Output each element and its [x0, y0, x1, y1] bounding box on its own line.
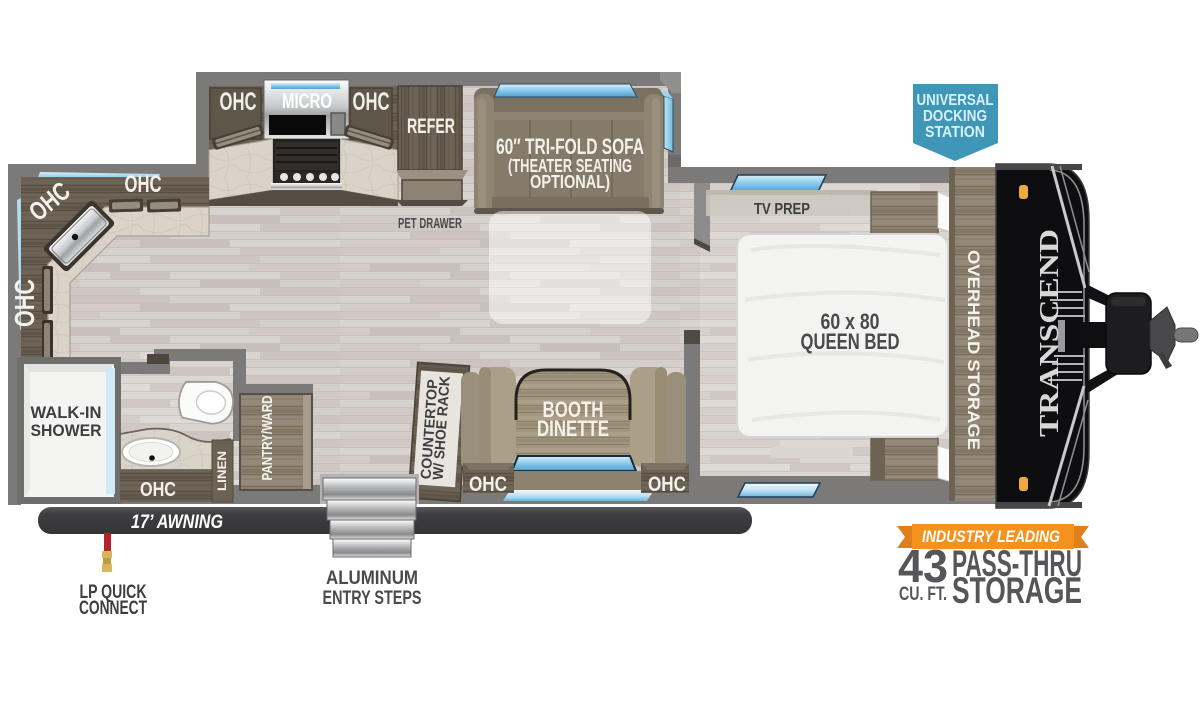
svg-text:DOCKING: DOCKING: [923, 108, 987, 125]
svg-text:OVERHEAD STORAGE: OVERHEAD STORAGE: [964, 250, 983, 450]
svg-text:OHC: OHC: [469, 473, 507, 496]
svg-text:OHC: OHC: [140, 479, 176, 501]
svg-text:TV PREP: TV PREP: [754, 201, 810, 218]
svg-text:ENTRY STEPS: ENTRY STEPS: [323, 588, 422, 609]
svg-text:UNIVERSAL: UNIVERSAL: [917, 92, 994, 109]
svg-text:ALUMINUM: ALUMINUM: [326, 568, 418, 589]
svg-text:QUEEN BED: QUEEN BED: [801, 329, 900, 354]
svg-text:OHC: OHC: [353, 88, 390, 116]
svg-text:PANTRY/WARD: PANTRY/WARD: [259, 395, 276, 480]
svg-text:OHC: OHC: [648, 473, 686, 496]
svg-text:OHC: OHC: [220, 88, 257, 116]
svg-text:STORAGE: STORAGE: [952, 570, 1082, 611]
svg-text:MICRO: MICRO: [282, 90, 332, 113]
svg-text:DINETTE: DINETTE: [537, 416, 609, 441]
svg-text:OPTIONAL): OPTIONAL): [530, 172, 610, 192]
svg-text:PET DRAWER: PET DRAWER: [398, 215, 462, 232]
svg-text:REFER: REFER: [407, 115, 455, 138]
svg-text:TRANSCEND: TRANSCEND: [1034, 229, 1064, 437]
svg-text:17’ AWNING: 17’ AWNING: [131, 512, 223, 533]
svg-text:OHC: OHC: [9, 279, 40, 327]
svg-text:WALK-IN: WALK-IN: [31, 403, 102, 422]
svg-text:SHOWER: SHOWER: [31, 421, 102, 440]
svg-text:STATION: STATION: [925, 124, 985, 141]
svg-text:LINEN: LINEN: [217, 451, 229, 491]
svg-text:OHC: OHC: [125, 171, 162, 198]
svg-text:CONNECT: CONNECT: [79, 598, 147, 619]
svg-text:CU. FT.: CU. FT.: [899, 584, 947, 605]
